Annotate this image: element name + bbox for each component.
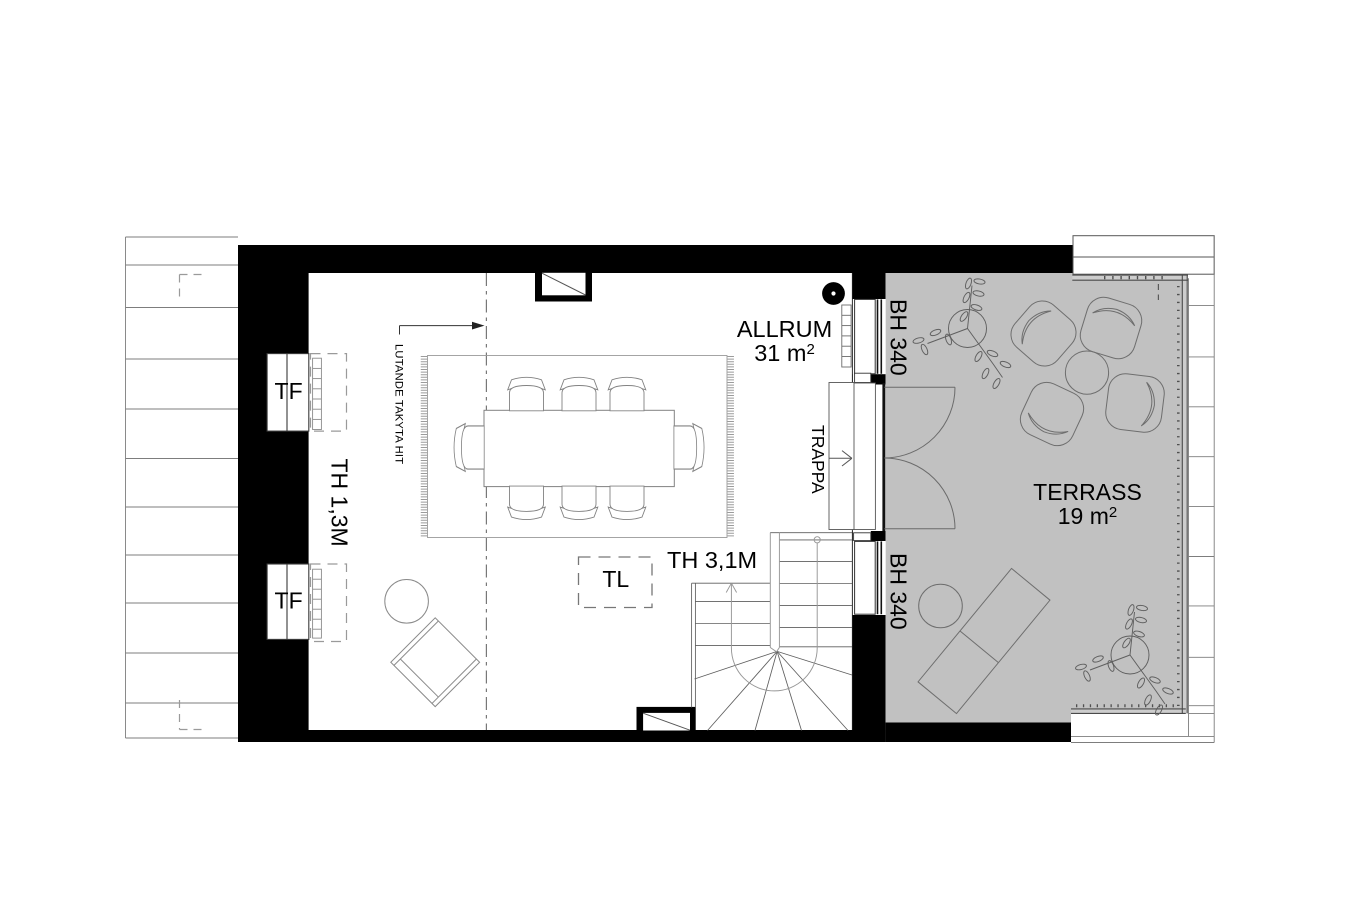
svg-text:19 m2: 19 m2 bbox=[1058, 503, 1117, 529]
svg-text:TF: TF bbox=[275, 378, 303, 404]
svg-text:TERRASS: TERRASS bbox=[1033, 479, 1142, 505]
svg-text:LUTANDE TAKYTA HIT: LUTANDE TAKYTA HIT bbox=[393, 344, 405, 464]
svg-text:BH 340: BH 340 bbox=[886, 299, 912, 376]
svg-text:31 m2: 31 m2 bbox=[754, 340, 815, 366]
svg-text:TL: TL bbox=[602, 566, 629, 592]
svg-text:TH 3,1M: TH 3,1M bbox=[667, 547, 757, 573]
svg-text:TF: TF bbox=[275, 588, 303, 614]
svg-text:ALLRUM: ALLRUM bbox=[737, 316, 832, 342]
svg-text:TH 1,3M: TH 1,3M bbox=[327, 459, 353, 547]
svg-text:TRAPPA: TRAPPA bbox=[808, 425, 828, 494]
svg-text:BH 340: BH 340 bbox=[886, 553, 912, 630]
